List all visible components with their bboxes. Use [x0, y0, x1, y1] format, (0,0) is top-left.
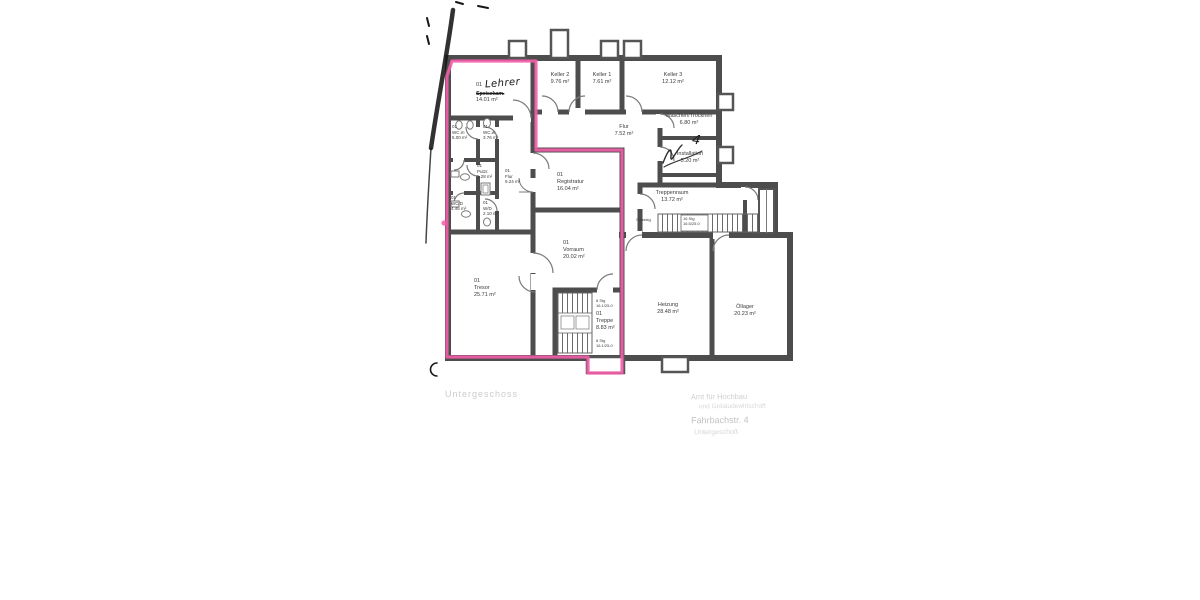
- room-label-vorraum: 01 Vorraum 20.02 m²: [563, 240, 585, 261]
- room-label-putzraum: 01 Putzr. 1.28 m²: [477, 163, 492, 180]
- room-label-w-d: 01 W/D 2.10 m²: [483, 200, 498, 217]
- room-label-flur-klein: 01 Flur 9.24 m²: [505, 168, 520, 185]
- room-label-wc-w: 01 WC.w 3.76 m²: [483, 124, 498, 141]
- room-label-oellager: Öllager 20.23 m²: [734, 304, 756, 318]
- room-label-tresor: 01 Tresor 25.71 m²: [474, 278, 496, 299]
- room-label-keller2: Keller 2 9.76 m²: [551, 72, 570, 86]
- room-label-wc-m: 01 WC.m 5.00 m²: [452, 124, 467, 141]
- handwritten-room-name: Lehrer: [485, 76, 521, 92]
- room-label-waschen-trocknen: Waschen/Trocknen 6.80 m²: [666, 113, 713, 127]
- shaft: [759, 189, 774, 233]
- room-label-keller1: Keller 1 7.61 m²: [593, 72, 612, 86]
- room-label-wc-d: 01 WC/D 4.46 m²: [451, 195, 466, 212]
- crossed-out-name: Speisekam.: [476, 91, 521, 98]
- room-label-heizung: Heizung 28.48 m²: [657, 302, 679, 316]
- treppe-steps-bottom-label: 8 Stg 16.1/25.0: [596, 339, 613, 348]
- treppe-stairs: [558, 293, 592, 353]
- scanned-floorplan-page: 01 Lehrer Speisekam. 14.01 m² Keller 2 9…: [0, 0, 1200, 600]
- treppenraum-material-label: Sandstg.: [636, 218, 652, 223]
- room-label-treppe: 01 Treppe 8.83 m²: [596, 311, 615, 332]
- room-area: 14.01 m²: [476, 97, 521, 104]
- room-number: 01: [476, 82, 482, 88]
- treppenraum-steps-label: 16 Stg 16.5/25.0: [683, 217, 700, 226]
- room-label-treppenraum: Treppenraum 13.72 m²: [656, 190, 689, 204]
- floor-caption: Untergeschoss: [445, 389, 518, 399]
- room-label-keller3: Keller 3 12.12 m²: [662, 72, 684, 86]
- room-label-lehrer: 01 Lehrer Speisekam. 14.01 m²: [476, 78, 521, 104]
- room-label-flur-og: Flur 7.52 m²: [615, 124, 634, 138]
- room-label-registratur: 01 Registratur 16.04 m²: [557, 172, 584, 193]
- treppenraum-stairs: [658, 214, 770, 232]
- title-stamp: Amt für Hochbau und Gebäudewirtschaft Fa…: [691, 392, 766, 437]
- treppe-steps-top-label: 8 Stg 16.1/25.0: [596, 299, 613, 308]
- room-label-installation: Installation 5.20 m²: [677, 151, 703, 165]
